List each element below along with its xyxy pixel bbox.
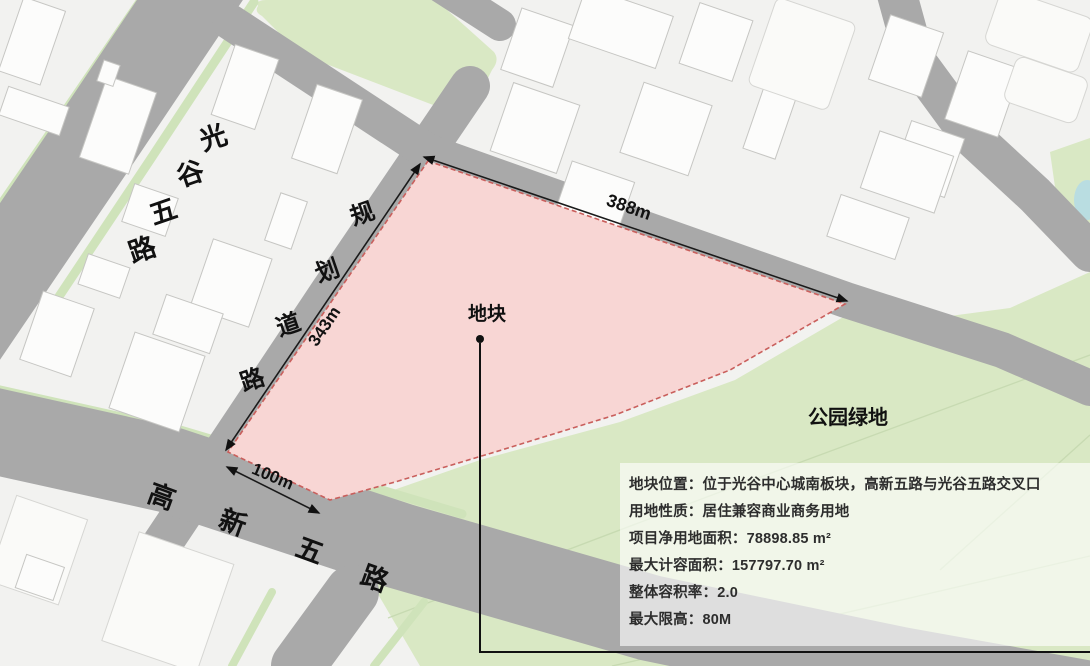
plot-label: 地块 xyxy=(468,302,507,325)
info-line-land-use: 用地性质：居住兼容商业商务用地 xyxy=(629,499,1084,526)
info-box: 地块位置：位于光谷中心城南板块，高新五路与光谷五路交叉口 用地性质：居住兼容商业… xyxy=(620,463,1090,646)
info-line-far: 整体容积率：2.0 xyxy=(629,580,1084,607)
info-line-location: 地块位置：位于光谷中心城南板块，高新五路与光谷五路交叉口 xyxy=(629,472,1084,499)
info-line-net-area: 项目净用地面积：78898.85 m² xyxy=(629,526,1084,553)
site-plan-image: 388m 343m 100m 光 谷 五 路 规 划 道 路 高 新 五 路 地… xyxy=(0,0,1090,666)
info-line-max-gfa: 最大计容面积：157797.70 m² xyxy=(629,553,1084,580)
park-label: 公园绿地 xyxy=(808,405,888,429)
plot-marker-dot xyxy=(476,335,484,343)
info-line-max-height: 最大限高：80M xyxy=(629,607,1084,634)
